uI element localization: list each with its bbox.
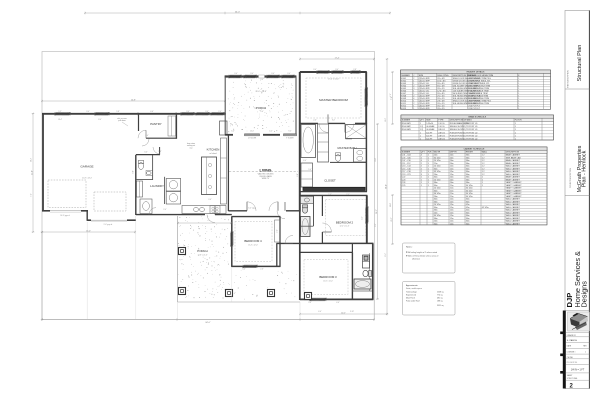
svg-text:1: 1 [515,138,516,140]
svg-text:34 1/2in: 34 1/2in [466,190,473,192]
svg-text:34 1/2in: 34 1/2in [466,193,473,195]
svg-text:2.0 LVL: 2.0 LVL [438,126,445,128]
svg-text:24in: 24in [450,179,454,181]
svg-text:21in: 21in [450,185,454,187]
svg-text:Structural Plan: Structural Plan [577,45,583,82]
svg-text:1: 1 [428,163,429,165]
svg-text:30in: 30in [466,215,470,217]
svg-text:24in: 24in [450,177,454,179]
svg-text:WALL CABINET: WALL CABINET [506,203,521,206]
svg-text:34 1/2in: 34 1/2in [466,185,473,187]
svg-text:SINGLE SLOPE: SINGLE SLOPE [450,126,465,128]
svg-text:1: 1 [482,177,483,179]
svg-text:BASE CABINET: BASE CABINET [506,154,521,157]
svg-text:QTY: QTY [420,120,425,122]
svg-text:1: 1 [482,179,483,181]
svg-text:36in: 36in [434,201,438,203]
svg-text:8'-0": 8'-0" [98,119,102,121]
svg-text:PORCH POSTS: PORCH POSTS [450,138,465,140]
svg-text:11'-4" x 12'-0": 11'-4" x 12'-0" [248,244,258,246]
svg-text:12'-0": 12'-0" [250,131,254,133]
svg-text:1 2: 1 2 [482,168,485,170]
svg-text:2'-8": 2'-8" [353,69,357,71]
svg-text:1 2: 1 2 [482,157,485,159]
svg-text:24in: 24in [434,221,438,223]
svg-text:1: 1 [428,155,429,157]
svg-text:WIDTH: WIDTH [434,152,441,154]
svg-text:9' SLIDER: 9' SLIDER [286,137,294,139]
svg-text:C25: C25 [402,185,406,187]
svg-text:C17 - C18: C17 - C18 [402,171,411,173]
svg-text:1: 1 [482,182,483,184]
svg-text:24F-V4: 24F-V4 [438,138,445,140]
svg-text:24 1/2in: 24 1/2in [434,166,441,168]
svg-text:RGH. OPNG.: RGH. OPNG. [437,75,449,77]
svg-text:VANITY CABINET: VANITY CABINET [506,192,523,195]
svg-text:3'-0": 3'-0" [234,73,238,75]
svg-text:VANITY CABINET: VANITY CABINET [506,195,523,198]
svg-text:2'-8": 2'-8" [158,151,162,153]
svg-text:WALL CABINET: WALL CABINET [506,173,521,176]
svg-text:30in: 30in [466,171,470,173]
svg-text:Designs: Designs [580,281,589,308]
svg-text:24 1/2in: 24 1/2in [434,188,441,190]
svg-text:1: 1 [421,177,422,179]
svg-text:SHEET: SHEET [567,375,573,377]
svg-text:5'-2": 5'-2" [362,216,364,220]
svg-text:pull down: pull down [118,120,126,122]
svg-text:GARAGE: GARAGE [80,165,93,169]
svg-text:24in: 24in [434,212,438,214]
svg-text:All ceiling heights = 9' unles: All ceiling heights = 9' unless noted [408,251,437,254]
svg-text:42 1/2in: 42 1/2in [482,207,489,209]
svg-text:3'-0": 3'-0" [86,111,90,113]
svg-text:16'-4": 16'-4" [58,119,62,121]
svg-text:12in: 12in [450,223,454,225]
svg-text:26'-2": 26'-2" [376,209,378,214]
svg-text:3'-0": 3'-0" [205,111,209,113]
svg-text:24in: 24in [450,160,454,162]
svg-text:12in: 12in [450,218,454,220]
svg-text:KITCHEN: KITCHEN [207,148,220,152]
svg-text:1 2): 1 2) [420,129,424,131]
svg-text:12in: 12in [450,207,454,209]
svg-text:3: 3 [421,174,422,176]
svg-text:TYPE: TYPE [438,120,444,122]
svg-text:24in: 24in [450,182,454,184]
svg-text:2: 2 [421,157,422,159]
svg-text:2: 2 [421,163,422,165]
svg-text:EX13: EX13 [401,108,406,110]
svg-text:6'-0" opng: 6'-0" opng [248,207,255,209]
svg-text:1: 1 [420,138,421,140]
svg-text:42in: 42in [466,204,470,206]
svg-text:30in: 30in [466,223,470,225]
svg-text:24 1/2in: 24 1/2in [434,160,441,162]
svg-text:1: 1 [515,129,516,131]
svg-text:HEIGHT: HEIGHT [466,152,474,154]
svg-text:24F-V4: 24F-V4 [438,129,445,131]
svg-text:17'-4" x 13'-0": 17'-4" x 13'-0" [328,79,339,81]
svg-text:42in: 42in [466,207,470,209]
svg-text:36in: 36in [434,218,438,220]
svg-text:1 2: 1 2 [482,174,485,176]
svg-text:2: 2 [421,171,422,173]
svg-text:LAUNDRY: LAUNDRY [150,184,164,188]
svg-text:PORCH: PORCH [256,106,266,110]
svg-text:PHONE: PHONE [567,357,574,359]
svg-text:24F-V4: 24F-V4 [438,132,445,134]
svg-text:12in: 12in [450,201,454,203]
svg-text:RDG BM3: RDG BM3 [402,129,411,131]
svg-text:36in: 36in [466,157,470,159]
svg-text:12in: 12in [450,166,454,168]
svg-text:30in: 30in [434,190,438,192]
svg-text:1: 1 [428,160,429,162]
svg-text:21in: 21in [434,163,438,165]
svg-text:NUMBER: NUMBER [402,152,411,154]
svg-text:36in: 36in [466,182,470,184]
svg-text:CLOSET: CLOSET [324,179,336,183]
svg-text:30in: 30in [434,199,438,201]
svg-text:3'-0": 3'-0" [250,73,254,75]
svg-text:12in: 12in [450,171,454,173]
svg-text:Main Porch: Main Porch [406,298,415,300]
svg-text:1: 1 [518,108,519,110]
svg-text:24in: 24in [450,155,454,157]
svg-text:5'-8": 5'-8" [116,111,120,113]
svg-text:BEDROOM 2: BEDROOM 2 [336,221,354,225]
svg-text:2) TR POST LD: 2) TR POST LD [464,138,478,140]
svg-text:2'-4": 2'-4" [277,229,279,233]
svg-text:17'-4": 17'-4" [335,57,340,59]
svg-text:34 1/2in: 34 1/2in [466,196,473,198]
svg-text:1: 1 [420,132,421,134]
svg-text:1: 1 [421,185,422,187]
svg-text:WALL CABINET: WALL CABINET [506,200,521,203]
svg-text:SIZE: SIZE [419,75,424,77]
svg-text:SHEET DESCRIPTION: SHEET DESCRIPTION [568,70,570,88]
svg-text:WALL CABINET: WALL CABINET [506,167,521,170]
svg-text:5.25x14: 5.25x14 [426,123,434,125]
svg-text:6'-0": 6'-0" [231,131,235,133]
svg-text:BEDROOM 4: BEDROOM 4 [244,239,262,243]
svg-text:1: 1 [413,108,414,110]
svg-text:36in: 36in [466,160,470,162]
svg-text:3'-0": 3'-0" [271,73,275,75]
svg-text:2: 2 [421,168,422,170]
svg-text:3'-0": 3'-0" [313,69,317,71]
svg-text:DETAILS: DETAILS [464,119,473,122]
svg-text:VANITY CABINET: VANITY CABINET [506,187,523,190]
svg-text:21in: 21in [450,188,454,190]
svg-text:6'-0": 6'-0" [297,173,299,177]
svg-text:otherwise: otherwise [412,258,420,261]
svg-text:GLULAM: GLULAM [426,128,434,131]
svg-text:30in: 30in [466,221,470,223]
svg-text:FLR: FLR [428,152,432,154]
svg-text:36in: 36in [466,177,470,179]
svg-text:2508 sq: 2508 sq [437,291,443,293]
svg-text:DEPTH: DEPTH [450,152,457,154]
svg-text:BEDROOM 3: BEDROOM 3 [319,275,337,279]
svg-text:1: 1 [428,177,429,179]
svg-text:36in: 36in [466,155,470,157]
svg-text:12in: 12in [450,210,454,212]
svg-text:S. PARCH: S. PARCH [567,339,578,342]
svg-text:6x6 PT: 6x6 PT [426,135,433,137]
svg-text:21'-0" x 18'-8": 21'-0" x 18'-8" [255,91,266,93]
svg-text:5'-2": 5'-2" [58,111,62,113]
svg-text:21in: 21in [450,193,454,195]
svg-text:2.0 LVL: 2.0 LVL [438,123,445,125]
svg-text:BASE CABINET: BASE CABINET [506,159,521,162]
svg-text:30in: 30in [434,168,438,170]
svg-text:36in: 36in [434,182,438,184]
svg-text:2) TR POST LD: 2) TR POST LD [464,123,478,125]
svg-text:9'-0": 9'-0" [133,170,135,174]
svg-text:RDG BM1: RDG BM1 [402,123,411,125]
svg-text:24in: 24in [434,174,438,176]
svg-text:WALL CABINET: WALL CABINET [506,211,521,214]
svg-text:PANTRY: PANTRY [150,122,162,126]
svg-text:38'-4": 38'-4" [385,184,387,189]
svg-text:24in: 24in [450,157,454,159]
svg-text:1: 1 [428,171,429,173]
svg-text:BASE CABINET: BASE CABINET [506,162,521,165]
svg-text:VANITY CABINET: VANITY CABINET [506,189,523,192]
svg-text:C01 - C04: C01 - C04 [402,155,412,157]
svg-text:DESCRIPTION: DESCRIPTION [450,120,464,122]
svg-text:Patio under Roof: Patio under Roof [406,300,420,303]
svg-text:30 1/2in: 30 1/2in [434,215,441,217]
svg-text:12in: 12in [450,199,454,201]
svg-text:C23: C23 [402,179,406,181]
svg-text:30in: 30in [434,177,438,179]
svg-text:6x6 PT: 6x6 PT [426,138,433,140]
svg-text:16'-0" grge dr: 16'-0" grge dr [60,215,70,217]
svg-text:VANITY CABINET: VANITY CABINET [506,184,523,187]
svg-text:36in: 36in [466,179,470,181]
svg-text:1: 1 [420,123,421,125]
svg-text:24F-V4: 24F-V4 [438,135,445,137]
svg-text:21'-8" x 23'-4": 21'-8" x 23'-4" [82,177,92,179]
svg-text:1 2: 1 2 [482,171,485,173]
svg-text:3'-0": 3'-0" [287,73,291,75]
svg-text:30in: 30in [466,199,470,201]
svg-text:3'-0": 3'-0" [308,302,312,304]
svg-text:1: 1 [420,135,421,137]
svg-text:2: 2 [421,166,422,168]
svg-text:WALL CABINET: WALL CABINET [506,198,521,201]
svg-text:6'-0": 6'-0" [303,160,307,162]
svg-text:C13 - C14: C13 - C14 [402,166,412,168]
svg-text:Notes:: Notes: [406,245,413,248]
svg-text:1: 1 [515,126,516,128]
svg-text:24'-8": 24'-8" [131,99,136,101]
svg-text:3'-0": 3'-0" [186,111,190,113]
svg-text:1/4 IN = 1 FT: 1/4 IN = 1 FT [571,370,585,372]
svg-text:1: 1 [428,179,429,181]
svg-text:1: 1 [482,185,483,187]
svg-text:21in: 21in [450,196,454,198]
svg-text:DRAWN BY: DRAWN BY [567,334,577,337]
svg-text:2) TR POST LD: 2) TR POST LD [464,135,478,137]
svg-text:11'-2": 11'-2" [385,253,387,257]
svg-text:WALL CABINET: WALL CABINET [506,214,521,217]
svg-text:5'-0": 5'-0" [308,169,312,171]
svg-text:12in: 12in [450,174,454,176]
svg-text:7'-6": 7'-6" [390,93,392,97]
svg-text:C07 - C10: C07 - C10 [402,160,411,162]
svg-text:12in: 12in [450,221,454,223]
svg-text:24 1/2in: 24 1/2in [434,204,441,206]
svg-text:WALL CABINET: WALL CABINET [506,222,521,225]
svg-text:WALL CABINET: WALL CABINET [506,209,521,212]
svg-text:RDG BM2: RDG BM2 [402,126,411,128]
svg-text:4'-6": 4'-6" [150,111,154,113]
svg-text:SINK BASE CAB: SINK BASE CAB [506,156,521,159]
svg-text:1: 1 [585,352,586,354]
svg-text:rear: rear [189,146,192,149]
svg-text:6'-4": 6'-4" [318,311,322,313]
svg-text:9'-0": 9'-0" [288,131,292,133]
svg-text:30in: 30in [466,218,470,220]
svg-text:VANITY CABINET: VANITY CABINET [506,181,523,184]
svg-text:2'-4": 2'-4" [145,135,149,137]
svg-text:Total sq ftage: Total sq ftage [406,290,417,293]
svg-text:C19 - C21: C19 - C21 [402,174,411,176]
svg-text:SIZE: SIZE [426,120,431,122]
svg-text:1 2: 1 2 [482,160,485,162]
svg-text:3'-0": 3'-0" [346,194,350,196]
svg-text:30in: 30in [466,166,470,168]
svg-text:20'-0": 20'-0" [390,203,392,207]
svg-text:24 1/2in: 24 1/2in [434,179,441,181]
svg-text:2'-6": 2'-6" [313,120,317,122]
svg-text:1 2): 1 2) [420,126,424,128]
svg-text:12'-8" x 21'-0": 12'-8" x 21'-0" [198,254,208,256]
svg-text:7'-4": 7'-4" [31,193,33,197]
svg-text:3'-0": 3'-0" [242,269,246,271]
svg-text:QTY: QTY [421,152,426,154]
svg-text:12'-0": 12'-0" [375,158,377,162]
svg-text:1: 1 [428,174,429,176]
svg-text:3'-0": 3'-0" [335,69,339,71]
svg-text:Experienced: Experienced [406,295,416,297]
svg-text:5'-0": 5'-0" [328,194,332,196]
svg-text:WALL CABINET: WALL CABINET [506,165,521,168]
svg-text:3'-0": 3'-0" [332,120,336,122]
svg-text:PORCH POSTS: PORCH POSTS [450,132,465,134]
svg-text:PROJECT DESCRIPTION: PROJECT DESCRIPTION [570,167,572,188]
svg-text:C15 - C16: C15 - C16 [402,168,411,170]
svg-text:1: 1 [428,157,429,159]
svg-text:PORCH POSTS: PORCH POSTS [450,135,465,137]
svg-text:21'-4": 21'-4" [31,170,33,175]
svg-text:16'-0": 16'-0" [86,230,91,232]
svg-text:1: 1 [515,123,516,125]
svg-text:21in: 21in [450,190,454,192]
svg-text:WALL CABINET: WALL CABINET [506,220,521,223]
svg-text:14'-6": 14'-6" [385,118,387,122]
svg-text:WALL: WALL [482,151,488,154]
svg-text:3'-10": 3'-10" [350,311,354,313]
svg-text:1 2: 1 2 [482,166,485,168]
svg-text:8'-2": 8'-2" [375,223,377,227]
svg-text:GLULAM: GLULAM [426,125,434,128]
svg-text:BASE CABINET: BASE CABINET [506,178,521,181]
svg-text:24in: 24in [434,155,438,157]
svg-text:1: 1 [428,166,429,168]
svg-text:3951 sq: 3951 sq [437,305,443,307]
svg-text:30in: 30in [434,185,438,187]
svg-text:36 1/2in: 36 1/2in [434,193,441,195]
svg-text:DETAILS: DETAILS [468,74,477,77]
svg-text:1: 1 [428,182,429,184]
svg-text:24in: 24in [434,196,438,198]
svg-text:w/ island: w/ island [210,153,217,155]
svg-text:12in: 12in [450,215,454,217]
svg-text:34 1/2in: 34 1/2in [466,188,473,190]
svg-text:84'-0": 84'-0" [205,322,210,324]
svg-text:(2)2x10 SPF: (2)2x10 SPF [419,108,431,110]
svg-text:42in: 42in [466,210,470,212]
svg-text:12' SLIDER: 12' SLIDER [248,137,257,139]
svg-text:1 2: 1 2 [482,163,485,165]
svg-text:24in: 24in [450,163,454,165]
svg-text:FLOOR: FLOOR [515,120,522,122]
svg-text:56'-0": 56'-0" [235,11,240,13]
svg-text:2) TR POST LD: 2) TR POST LD [464,129,478,131]
svg-text:36in: 36in [466,163,470,165]
svg-text:30 1/2in: 30 1/2in [434,157,441,159]
svg-text:Attic or Extra climate unless: Attic or Extra climate unless areas of [408,255,438,258]
svg-text:WIRE TV: WIRE TV [262,178,270,180]
svg-text:BASE CABINET: BASE CABINET [506,176,521,179]
svg-text:SINGLE SLOPE: SINGLE SLOPE [450,129,465,131]
svg-text:WALL CABINET: WALL CABINET [506,170,521,173]
svg-text:30in: 30in [434,223,438,225]
svg-text:3'-6": 3'-6" [208,199,212,201]
svg-text:1: 1 [515,132,516,134]
svg-text:774 sq: 774 sq [437,295,442,297]
svg-text:4'-6": 4'-6" [336,302,340,304]
svg-text:10'-2": 10'-2" [341,312,346,314]
svg-text:Finite, usable space: Finite, usable space [406,287,422,290]
svg-text:30in: 30in [466,212,470,214]
svg-text:1: 1 [428,168,429,170]
svg-text:9'-0" grge dr: 9'-0" grge dr [104,224,113,226]
svg-text:1: 1 [421,179,422,181]
svg-text:DESCRIPTION: DESCRIPTION [506,152,520,154]
svg-text:WALL CABINET: WALL CABINET [506,206,521,209]
svg-text:12'-0" x 11'-4": 12'-0" x 11'-4" [340,226,350,228]
svg-text:481 sq: 481 sq [437,298,442,300]
svg-text:2'-4": 2'-4" [218,111,222,113]
svg-text:NUMBER: NUMBER [401,75,410,77]
svg-text:33 1/2in: 33 1/2in [434,171,441,173]
svg-text:C22: C22 [402,177,406,179]
svg-text:Plan - Hemlock: Plan - Hemlock [582,150,588,187]
svg-text:6x6 PT: 6x6 PT [426,132,433,134]
svg-text:1 2: 1 2 [482,155,485,157]
svg-text:12in: 12in [450,168,454,170]
svg-text:3'-0": 3'-0" [144,151,148,153]
svg-text:C05 - C06: C05 - C06 [402,157,411,159]
svg-text:2'-6": 2'-6" [260,269,264,271]
svg-text:10'-2": 10'-2" [31,158,33,162]
